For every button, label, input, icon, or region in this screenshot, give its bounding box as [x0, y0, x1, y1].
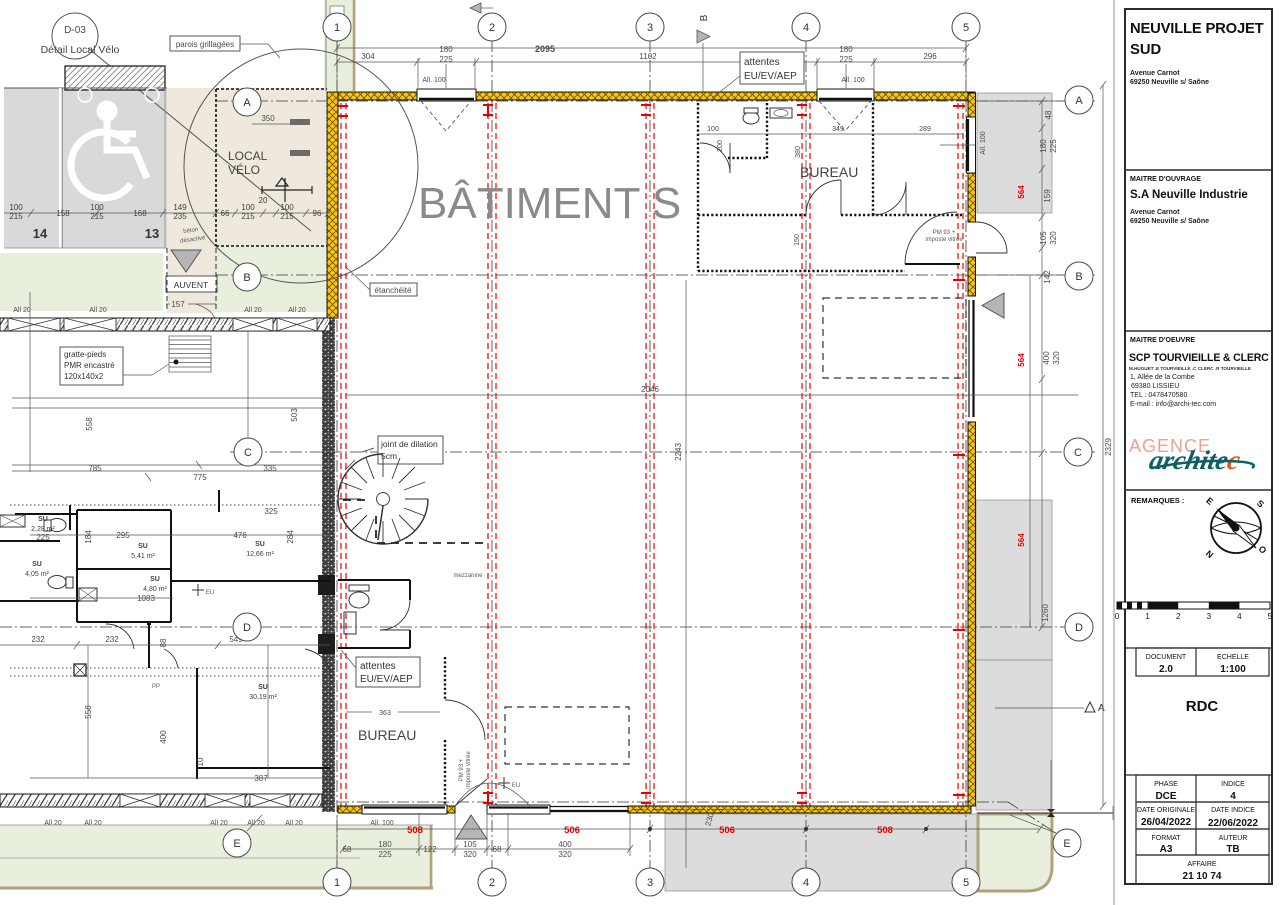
svg-text:168: 168	[133, 209, 147, 218]
svg-text:105: 105	[1039, 231, 1048, 245]
svg-text:100: 100	[707, 126, 719, 133]
svg-text:attentes: attentes	[744, 57, 780, 68]
svg-text:AFFAIRE: AFFAIRE	[1187, 861, 1217, 868]
svg-text:180: 180	[839, 45, 853, 54]
svg-text:4,05 m²: 4,05 m²	[25, 571, 49, 578]
svg-text:200: 200	[717, 140, 724, 152]
svg-text:gratte-pieds: gratte-pieds	[64, 350, 106, 359]
svg-text:1: 1	[1145, 612, 1150, 621]
svg-text:ECHELLE: ECHELLE	[1217, 654, 1249, 661]
svg-text:1260: 1260	[1041, 604, 1050, 622]
svg-text:3: 3	[647, 877, 653, 889]
svg-text:SU: SU	[138, 543, 148, 550]
svg-text:Détail Local Vélo: Détail Local Vélo	[41, 44, 120, 56]
svg-text:289: 289	[919, 126, 931, 133]
svg-text:1083: 1083	[137, 594, 155, 603]
svg-text:MAITRE D'OEUVRE: MAITRE D'OEUVRE	[1130, 337, 1195, 344]
svg-text:E: E	[1063, 838, 1070, 850]
svg-text:320: 320	[463, 850, 477, 859]
svg-text:A: A	[1075, 95, 1083, 107]
svg-text:476: 476	[233, 531, 247, 540]
svg-text:304: 304	[361, 52, 375, 61]
svg-text:EU/EV/AEP: EU/EV/AEP	[360, 674, 413, 685]
svg-text:All 20: All 20	[285, 820, 303, 827]
svg-text:All. 100: All. 100	[980, 131, 987, 154]
svg-text:508: 508	[877, 825, 893, 836]
svg-text:B: B	[699, 14, 710, 21]
svg-text:21 10 74: 21 10 74	[1183, 871, 1222, 882]
svg-text:225: 225	[36, 533, 50, 542]
svg-text:158: 158	[56, 209, 70, 218]
svg-text:SU: SU	[150, 576, 160, 583]
svg-text:506: 506	[564, 825, 580, 836]
svg-text:imposte vitrée: imposte vitrée	[925, 237, 963, 243]
svg-text:EU: EU	[512, 783, 520, 789]
svg-text:A: A	[243, 97, 251, 109]
svg-text:68: 68	[343, 845, 352, 854]
svg-text:imposte vitrée: imposte vitrée	[466, 751, 472, 789]
svg-text:BÂTIMENT S: BÂTIMENT S	[418, 179, 681, 228]
svg-text:564: 564	[1017, 353, 1026, 367]
svg-text:DATE INDICE: DATE INDICE	[1211, 807, 1255, 814]
svg-text:150: 150	[794, 234, 801, 246]
svg-text:PM 93 +: PM 93 +	[459, 758, 465, 781]
svg-text:1102: 1102	[639, 52, 657, 61]
svg-text:215: 215	[90, 212, 104, 221]
svg-text:PHASE: PHASE	[1154, 781, 1178, 788]
svg-text:564: 564	[1017, 533, 1026, 547]
svg-text:PP: PP	[152, 684, 160, 690]
svg-text:159: 159	[1043, 189, 1052, 203]
svg-text:785: 785	[88, 464, 102, 473]
svg-text:350: 350	[261, 114, 275, 123]
svg-text:215: 215	[241, 212, 255, 221]
svg-text:SU: SU	[255, 541, 265, 548]
svg-text:C: C	[1074, 447, 1082, 459]
svg-text:S.A Neuville Industrie: S.A Neuville Industrie	[1130, 189, 1248, 201]
svg-text:RDC: RDC	[1186, 698, 1219, 715]
svg-text:149: 149	[173, 203, 187, 212]
svg-text:295: 295	[116, 531, 130, 540]
svg-text:215: 215	[9, 212, 23, 221]
svg-text:325: 325	[264, 507, 278, 516]
svg-text:225: 225	[439, 55, 453, 64]
svg-text:All. 100: All. 100	[370, 820, 393, 827]
svg-text:INDICE: INDICE	[1221, 781, 1245, 788]
svg-text:5: 5	[963, 22, 969, 34]
svg-text:2,28 m²: 2,28 m²	[31, 526, 55, 533]
svg-text:400: 400	[1042, 351, 1051, 365]
svg-text:180: 180	[378, 840, 392, 849]
svg-text:2: 2	[489, 877, 495, 889]
svg-text:FORMAT: FORMAT	[1151, 835, 1181, 842]
svg-text:100: 100	[9, 203, 23, 212]
svg-text:564: 564	[1017, 185, 1026, 199]
svg-text:D-03: D-03	[64, 25, 86, 36]
svg-text:AUTEUR: AUTEUR	[1219, 835, 1248, 842]
svg-text:157: 157	[171, 300, 185, 309]
svg-text:12,66 m²: 12,66 m²	[246, 551, 274, 558]
svg-text:joint de dilation: joint de dilation	[380, 439, 438, 449]
svg-text:DCE: DCE	[1155, 791, 1176, 802]
svg-text:296: 296	[923, 52, 937, 61]
svg-text:2095: 2095	[535, 44, 555, 54]
svg-text:BUREAU: BUREAU	[800, 164, 858, 180]
svg-text:122: 122	[423, 845, 437, 854]
svg-text:105: 105	[463, 840, 477, 849]
svg-text:180: 180	[1039, 139, 1048, 153]
svg-text:DOCUMENT: DOCUMENT	[1146, 654, 1187, 661]
svg-text:attentes: attentes	[360, 661, 396, 672]
svg-text:120x140x2: 120x140x2	[64, 372, 104, 381]
svg-text:4: 4	[803, 877, 809, 889]
svg-text:400: 400	[558, 840, 572, 849]
svg-text:PM 93 +: PM 93 +	[933, 230, 956, 236]
svg-text:235: 235	[173, 212, 187, 221]
svg-text:225: 225	[378, 850, 392, 859]
svg-text:B: B	[243, 272, 250, 284]
svg-text:0: 0	[1115, 612, 1120, 621]
svg-text:284: 284	[286, 530, 295, 544]
svg-text:14: 14	[33, 226, 48, 241]
svg-text:225: 225	[839, 55, 853, 64]
svg-text:TEL : 0478470580: TEL : 0478470580	[1130, 392, 1187, 399]
svg-text:SU: SU	[38, 516, 48, 523]
svg-text:363: 363	[379, 710, 391, 717]
svg-text:4,80 m²: 4,80 m²	[143, 586, 167, 593]
svg-text:2.0: 2.0	[1159, 664, 1173, 675]
svg-text:380: 380	[795, 146, 802, 158]
svg-text:All. 100: All. 100	[841, 77, 864, 84]
svg-text:2329: 2329	[1104, 438, 1113, 456]
svg-text:4: 4	[1230, 791, 1236, 802]
svg-text:184: 184	[84, 530, 93, 544]
svg-text:All 20: All 20	[84, 820, 102, 827]
svg-text:100: 100	[280, 203, 294, 212]
svg-text:M.HUGUET .E TOURVIEILLE .C CLE: M.HUGUET .E TOURVIEILLE .C CLERC .R TOUR…	[1129, 366, 1251, 371]
svg-text:558: 558	[84, 705, 93, 719]
svg-text:2243: 2243	[674, 443, 683, 461]
svg-text:232: 232	[31, 635, 45, 644]
svg-text:215: 215	[280, 212, 294, 221]
svg-text:503: 503	[290, 408, 299, 422]
svg-text:320: 320	[1052, 351, 1061, 365]
svg-text:100: 100	[241, 203, 255, 212]
svg-text:10: 10	[196, 757, 205, 766]
svg-text:LOCAL: LOCAL	[228, 149, 268, 163]
svg-text:4: 4	[1237, 612, 1242, 621]
svg-text:5,41 m²: 5,41 m²	[131, 553, 155, 560]
svg-text:22/06/2022: 22/06/2022	[1208, 818, 1258, 829]
svg-text:1: 1	[334, 22, 340, 34]
svg-text:D: D	[243, 622, 251, 634]
svg-text:349: 349	[832, 126, 844, 133]
svg-text:All 20: All 20	[13, 307, 31, 314]
svg-text:387: 387	[254, 774, 268, 783]
svg-text:320: 320	[1049, 231, 1058, 245]
svg-text:NEUVILLE PROJET: NEUVILLE PROJET	[1130, 21, 1264, 37]
svg-text:1, Allée de la Combe: 1, Allée de la Combe	[1130, 374, 1195, 381]
svg-text:69380 LISSIEU: 69380 LISSIEU	[1131, 383, 1179, 390]
svg-text:100: 100	[90, 203, 104, 212]
svg-text:B: B	[1075, 271, 1082, 283]
svg-text:Avenue Carnot: Avenue Carnot	[1130, 209, 1180, 216]
svg-text:66: 66	[221, 209, 230, 218]
svg-text:180: 180	[439, 45, 453, 54]
svg-text:558: 558	[85, 417, 94, 431]
svg-text:142: 142	[1043, 270, 1052, 284]
svg-text:SU: SU	[32, 561, 42, 568]
svg-text:506: 506	[719, 825, 735, 836]
svg-text:EU: EU	[206, 590, 214, 596]
svg-text:All 20: All 20	[288, 307, 306, 314]
svg-text:D: D	[1075, 622, 1083, 634]
svg-text:TB: TB	[1226, 844, 1239, 855]
svg-text:13: 13	[145, 226, 159, 241]
svg-text:PMR encastré: PMR encastré	[64, 361, 115, 370]
svg-text:48: 48	[1044, 110, 1053, 119]
svg-text:225: 225	[1049, 139, 1058, 153]
svg-text:88: 88	[159, 638, 168, 647]
svg-text:All 20: All 20	[44, 820, 62, 827]
svg-text:All. 100: All. 100	[422, 77, 445, 84]
svg-text:E-mail : info@archi-tec.com: E-mail : info@archi-tec.com	[1130, 401, 1216, 408]
svg-text:4: 4	[803, 22, 809, 34]
svg-text:3: 3	[1207, 612, 1212, 621]
svg-text:A: A	[1098, 703, 1105, 714]
svg-text:mezzanine: mezzanine	[453, 573, 483, 579]
svg-text:BUREAU: BUREAU	[358, 727, 416, 743]
svg-text:SUD: SUD	[1130, 42, 1162, 58]
svg-text:All 20: All 20	[244, 307, 262, 314]
svg-text:DATE ORIGINALE: DATE ORIGINALE	[1137, 807, 1196, 814]
svg-text:5: 5	[1268, 612, 1273, 621]
svg-text:étanchéité: étanchéité	[375, 286, 412, 295]
svg-text:69250 Neuville s/ Saône: 69250 Neuville s/ Saône	[1130, 79, 1209, 86]
svg-text:232: 232	[105, 635, 119, 644]
svg-text:SCP TOURVIEILLE & CLERC: SCP TOURVIEILLE & CLERC	[1129, 352, 1269, 364]
svg-text:335: 335	[263, 464, 277, 473]
svg-text:2: 2	[1176, 612, 1181, 621]
svg-text:C: C	[244, 447, 252, 459]
svg-text:400: 400	[159, 730, 168, 744]
svg-text:69250 Neuville s/ Saône: 69250 Neuville s/ Saône	[1130, 218, 1209, 225]
svg-text:MAITRE D'OUVRAGE: MAITRE D'OUVRAGE	[1130, 176, 1201, 183]
svg-text:2046: 2046	[641, 385, 659, 394]
svg-text:REMARQUES :: REMARQUES :	[1131, 496, 1184, 505]
svg-text:508: 508	[407, 825, 423, 836]
svg-text:A3: A3	[1160, 844, 1173, 855]
svg-text:5: 5	[963, 877, 969, 889]
svg-text:1:100: 1:100	[1220, 664, 1246, 675]
svg-text:775: 775	[193, 473, 207, 482]
svg-text:96: 96	[313, 209, 322, 218]
svg-text:20: 20	[259, 196, 268, 205]
svg-text:Avenue Carnot: Avenue Carnot	[1130, 70, 1180, 77]
svg-text:AUVENT: AUVENT	[174, 280, 208, 290]
svg-text:E: E	[233, 838, 240, 850]
svg-text:VÉLO: VÉLO	[228, 162, 260, 177]
svg-text:2: 2	[489, 22, 495, 34]
svg-text:68: 68	[493, 845, 502, 854]
svg-text:EU/EV/AEP: EU/EV/AEP	[744, 71, 797, 82]
svg-text:26/04/2022: 26/04/2022	[1141, 817, 1191, 828]
svg-text:30,19 m²: 30,19 m²	[249, 694, 277, 701]
svg-text:All 20: All 20	[210, 820, 228, 827]
svg-text:320: 320	[558, 850, 572, 859]
svg-text:1: 1	[334, 877, 340, 889]
svg-text:SU: SU	[258, 684, 268, 691]
svg-text:parois grillagées: parois grillagées	[176, 40, 234, 49]
svg-text:All 20: All 20	[89, 307, 107, 314]
svg-text:3: 3	[647, 22, 653, 34]
